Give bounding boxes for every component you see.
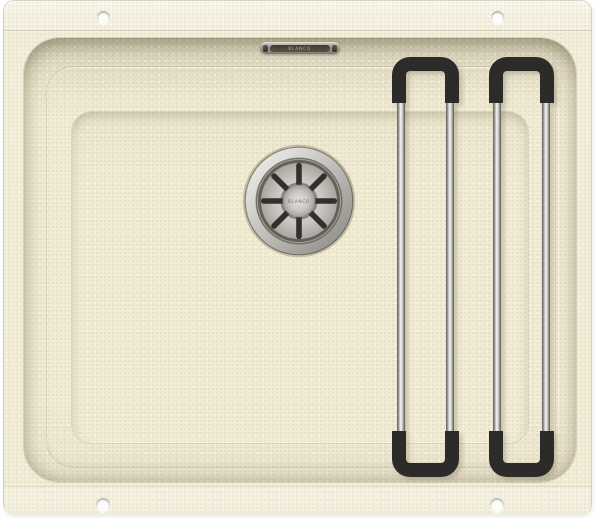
overflow-end-cap-left: [263, 45, 268, 52]
mounting-hole-bottom-right: [490, 498, 504, 512]
rail-bottom-grip: [489, 431, 554, 477]
etagon-rail-right: [489, 57, 554, 477]
etagon-rail-left: [392, 57, 459, 477]
rail-rod-right: [542, 67, 550, 469]
drain-cap-brand-text: BLANCO: [288, 199, 310, 205]
rail-rod-left: [397, 67, 405, 469]
rail-bottom-grip: [392, 431, 459, 477]
rail-rod-left: [493, 67, 501, 469]
overflow-slot: BLANCO: [270, 45, 330, 52]
rail-rod-right: [446, 67, 454, 469]
overflow-brand-text: BLANCO: [289, 46, 312, 51]
rail-top-grip: [489, 57, 554, 103]
mounting-hole-top-left: [97, 11, 110, 24]
mounting-hole-bottom-left: [96, 498, 110, 512]
drain-strainer: BLANCO: [241, 143, 357, 259]
overflow-end-cap-right: [332, 45, 337, 52]
overflow-cover: BLANCO: [260, 42, 340, 54]
rail-top-grip: [392, 57, 459, 103]
product-photo: BLANCO: [0, 0, 600, 518]
mounting-hole-top-right: [491, 11, 504, 24]
